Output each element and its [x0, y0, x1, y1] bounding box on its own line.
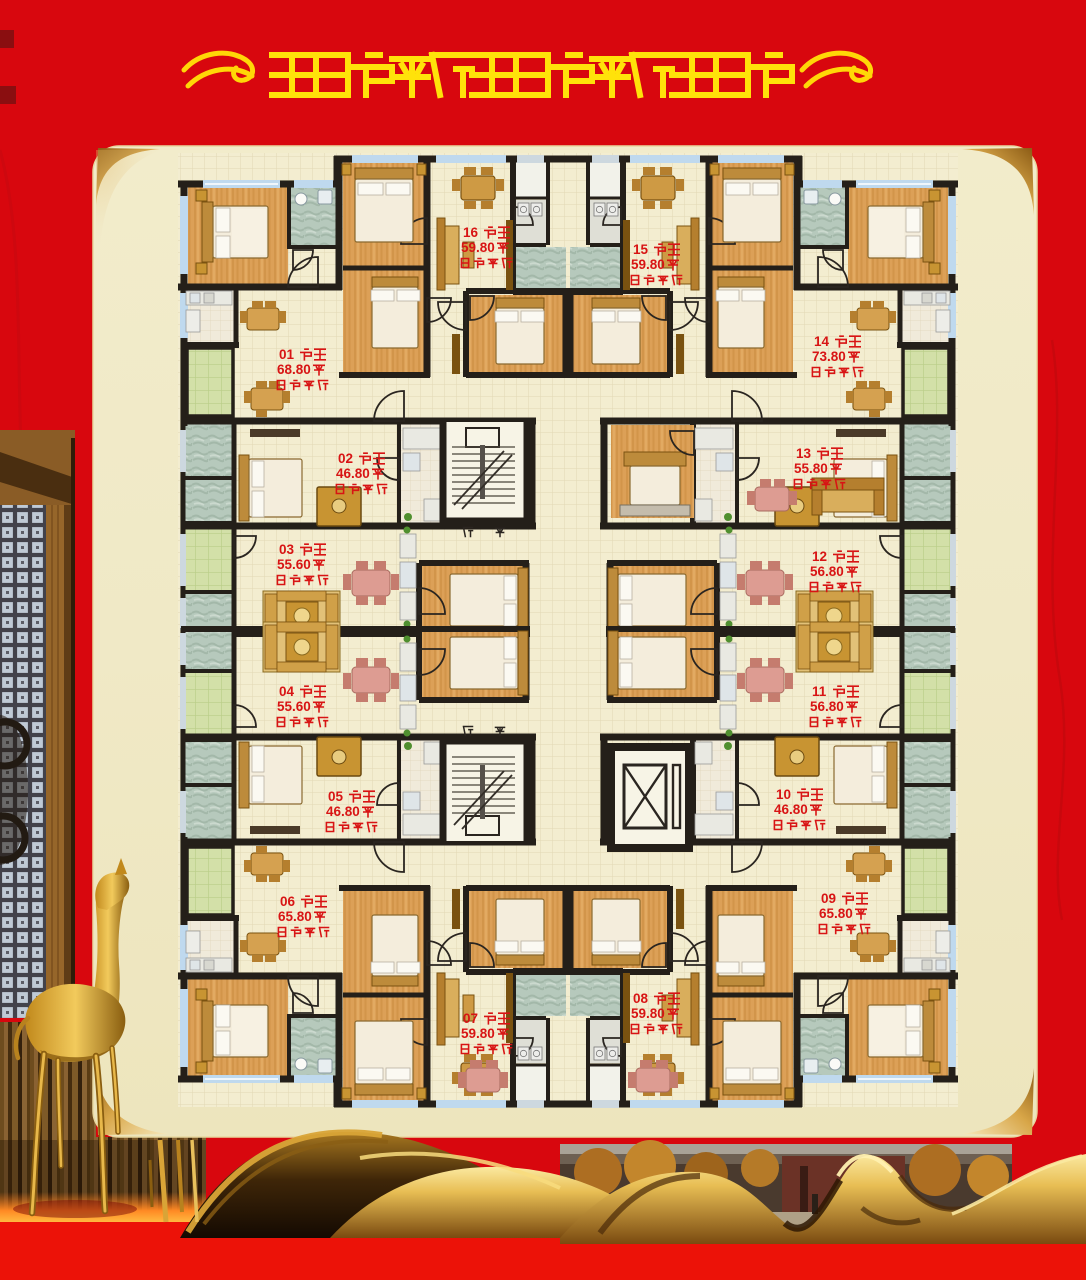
svg-text:46.80: 46.80 [774, 802, 808, 817]
svg-text:04: 04 [279, 684, 295, 699]
svg-text:07: 07 [463, 1011, 478, 1026]
svg-text:56.80: 56.80 [810, 699, 844, 714]
svg-text:59.80: 59.80 [461, 1026, 495, 1041]
svg-text:14: 14 [814, 334, 830, 349]
svg-text:55.60: 55.60 [277, 699, 311, 714]
svg-text:11: 11 [812, 684, 827, 699]
svg-text:55.60: 55.60 [277, 557, 311, 572]
svg-text:46.80: 46.80 [336, 466, 370, 481]
svg-text:15: 15 [633, 242, 649, 257]
svg-text:56.80: 56.80 [810, 564, 844, 579]
svg-text:59.80: 59.80 [631, 1006, 665, 1021]
svg-text:08: 08 [633, 991, 649, 1006]
svg-text:59.80: 59.80 [461, 240, 495, 255]
svg-text:01: 01 [279, 347, 295, 362]
svg-text:13: 13 [796, 446, 812, 461]
svg-text:68.80: 68.80 [277, 362, 311, 377]
svg-text:02: 02 [338, 451, 353, 466]
svg-text:09: 09 [821, 891, 836, 906]
svg-text:65.80: 65.80 [819, 906, 853, 921]
svg-text:03: 03 [279, 542, 295, 557]
svg-text:10: 10 [776, 787, 791, 802]
svg-text:16: 16 [463, 225, 479, 240]
svg-text:46.80: 46.80 [326, 804, 360, 819]
svg-text:73.80: 73.80 [812, 349, 846, 364]
svg-text:55.80: 55.80 [794, 461, 828, 476]
svg-text:65.80: 65.80 [278, 909, 312, 924]
svg-text:05: 05 [328, 789, 344, 804]
svg-text:59.80: 59.80 [631, 257, 665, 272]
svg-text:12: 12 [812, 549, 827, 564]
svg-text:06: 06 [280, 894, 296, 909]
